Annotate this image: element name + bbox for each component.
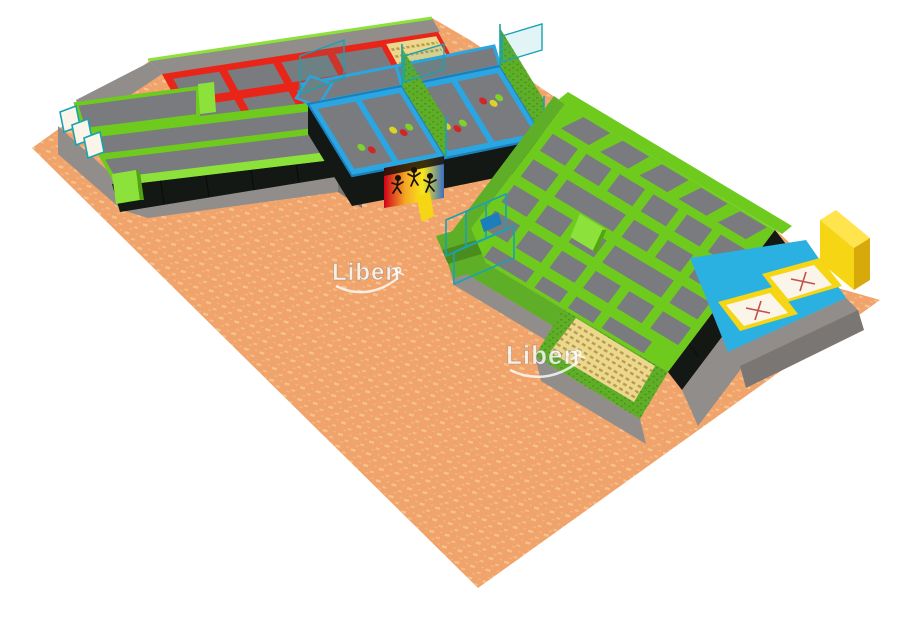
trampoline-park-render: Liben Liben: [0, 0, 908, 629]
green-corner-pillar: [198, 82, 216, 114]
green-corner-block: [112, 170, 140, 204]
svg-text:Liben: Liben: [506, 340, 580, 370]
